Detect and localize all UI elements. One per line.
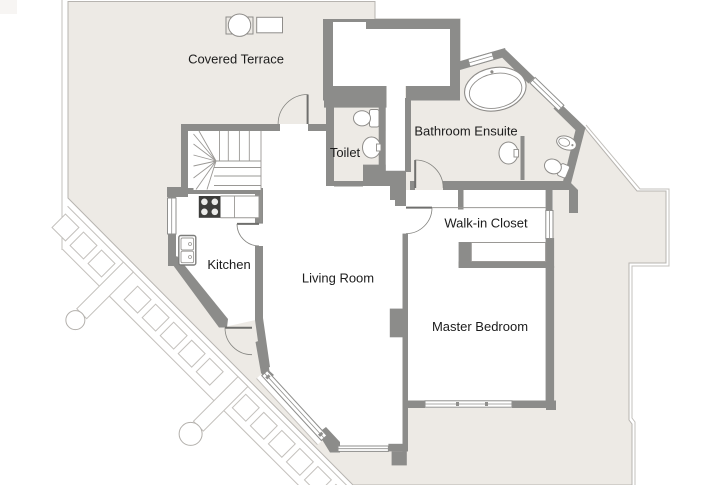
svg-text:Covered Terrace: Covered Terrace: [188, 52, 284, 67]
svg-text:Toilet: Toilet: [330, 145, 361, 160]
svg-text:Bathroom Ensuite: Bathroom Ensuite: [414, 124, 517, 139]
svg-text:Kitchen: Kitchen: [207, 257, 250, 272]
svg-text:Walk-in Closet: Walk-in Closet: [444, 216, 528, 231]
svg-text:Master Bedroom: Master Bedroom: [432, 319, 528, 334]
svg-text:Living Room: Living Room: [302, 271, 374, 286]
